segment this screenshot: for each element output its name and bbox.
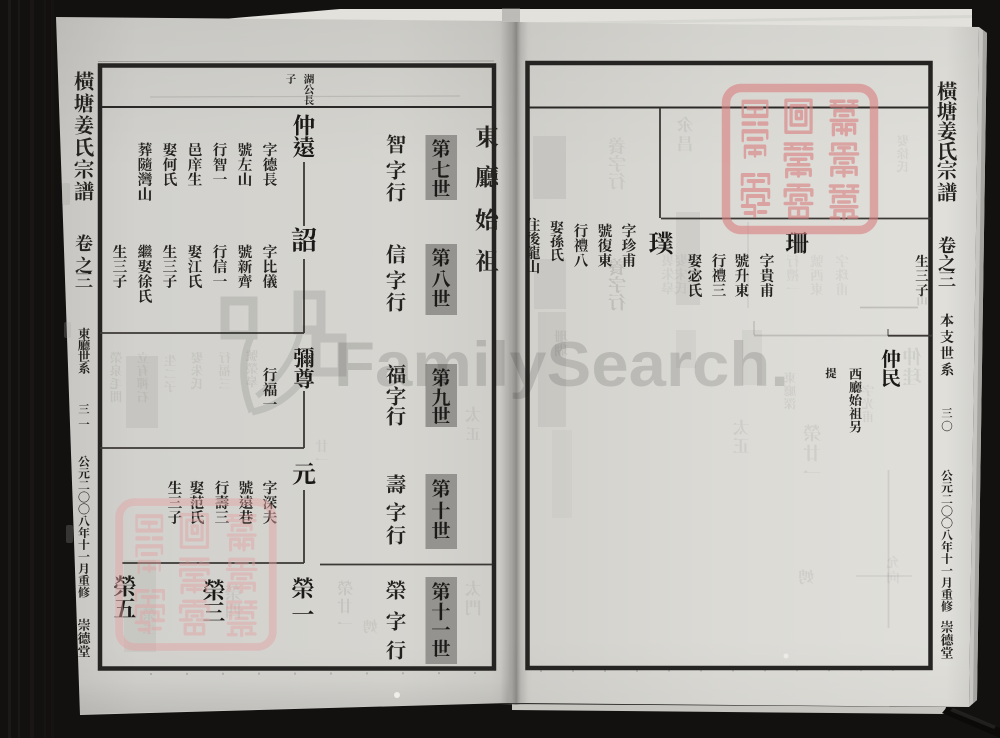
svg-text:FamilySearch.: FamilySearch. xyxy=(334,330,789,400)
